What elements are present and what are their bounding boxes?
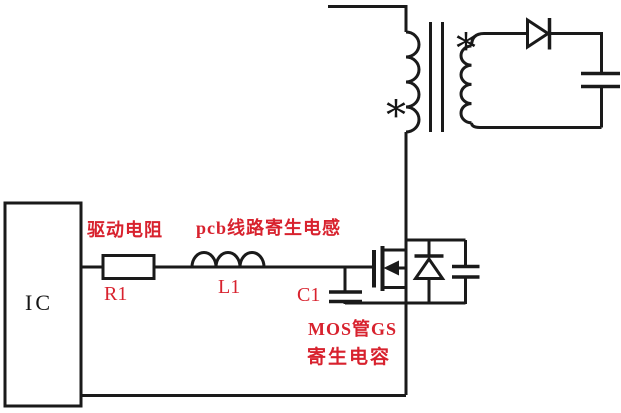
secondary-top-wire-left <box>472 34 528 47</box>
transformer-primary-winding <box>406 32 419 132</box>
label-pcb-inductance: pcb线路寄生电感 <box>196 219 341 237</box>
label-mos-gs-line1: MOS管GS <box>308 320 397 338</box>
primary-polarity-marker: * <box>386 96 406 136</box>
output-diode-triangle <box>528 20 549 47</box>
label-ic: IC <box>25 292 53 314</box>
inductor-l1 <box>192 253 264 268</box>
label-r1: R1 <box>104 284 127 304</box>
secondary-top-wire-right <box>549 34 602 74</box>
body-diode-triangle <box>416 259 443 279</box>
secondary-bottom-wire <box>472 123 602 128</box>
output-capacitor-plates <box>581 74 620 87</box>
input-wire <box>328 7 406 33</box>
mosfet-arrow <box>384 261 400 276</box>
label-c1: C1 <box>297 285 320 305</box>
resistor-r1 <box>103 256 154 279</box>
capacitor-c1-plates <box>329 292 362 302</box>
transformer-core <box>431 22 443 132</box>
coss-capacitor-plates <box>452 267 480 278</box>
label-mos-gs-line2: 寄生电容 <box>307 348 391 367</box>
secondary-polarity-marker: * <box>456 29 476 69</box>
label-l1: L1 <box>218 277 240 297</box>
label-drive-resistor: 驱动电阻 <box>87 221 163 239</box>
circuit-schematic: IC 驱动电阻 R1 pcb线路寄生电感 L1 C1 MOS管GS 寄生电容 *… <box>0 0 621 413</box>
